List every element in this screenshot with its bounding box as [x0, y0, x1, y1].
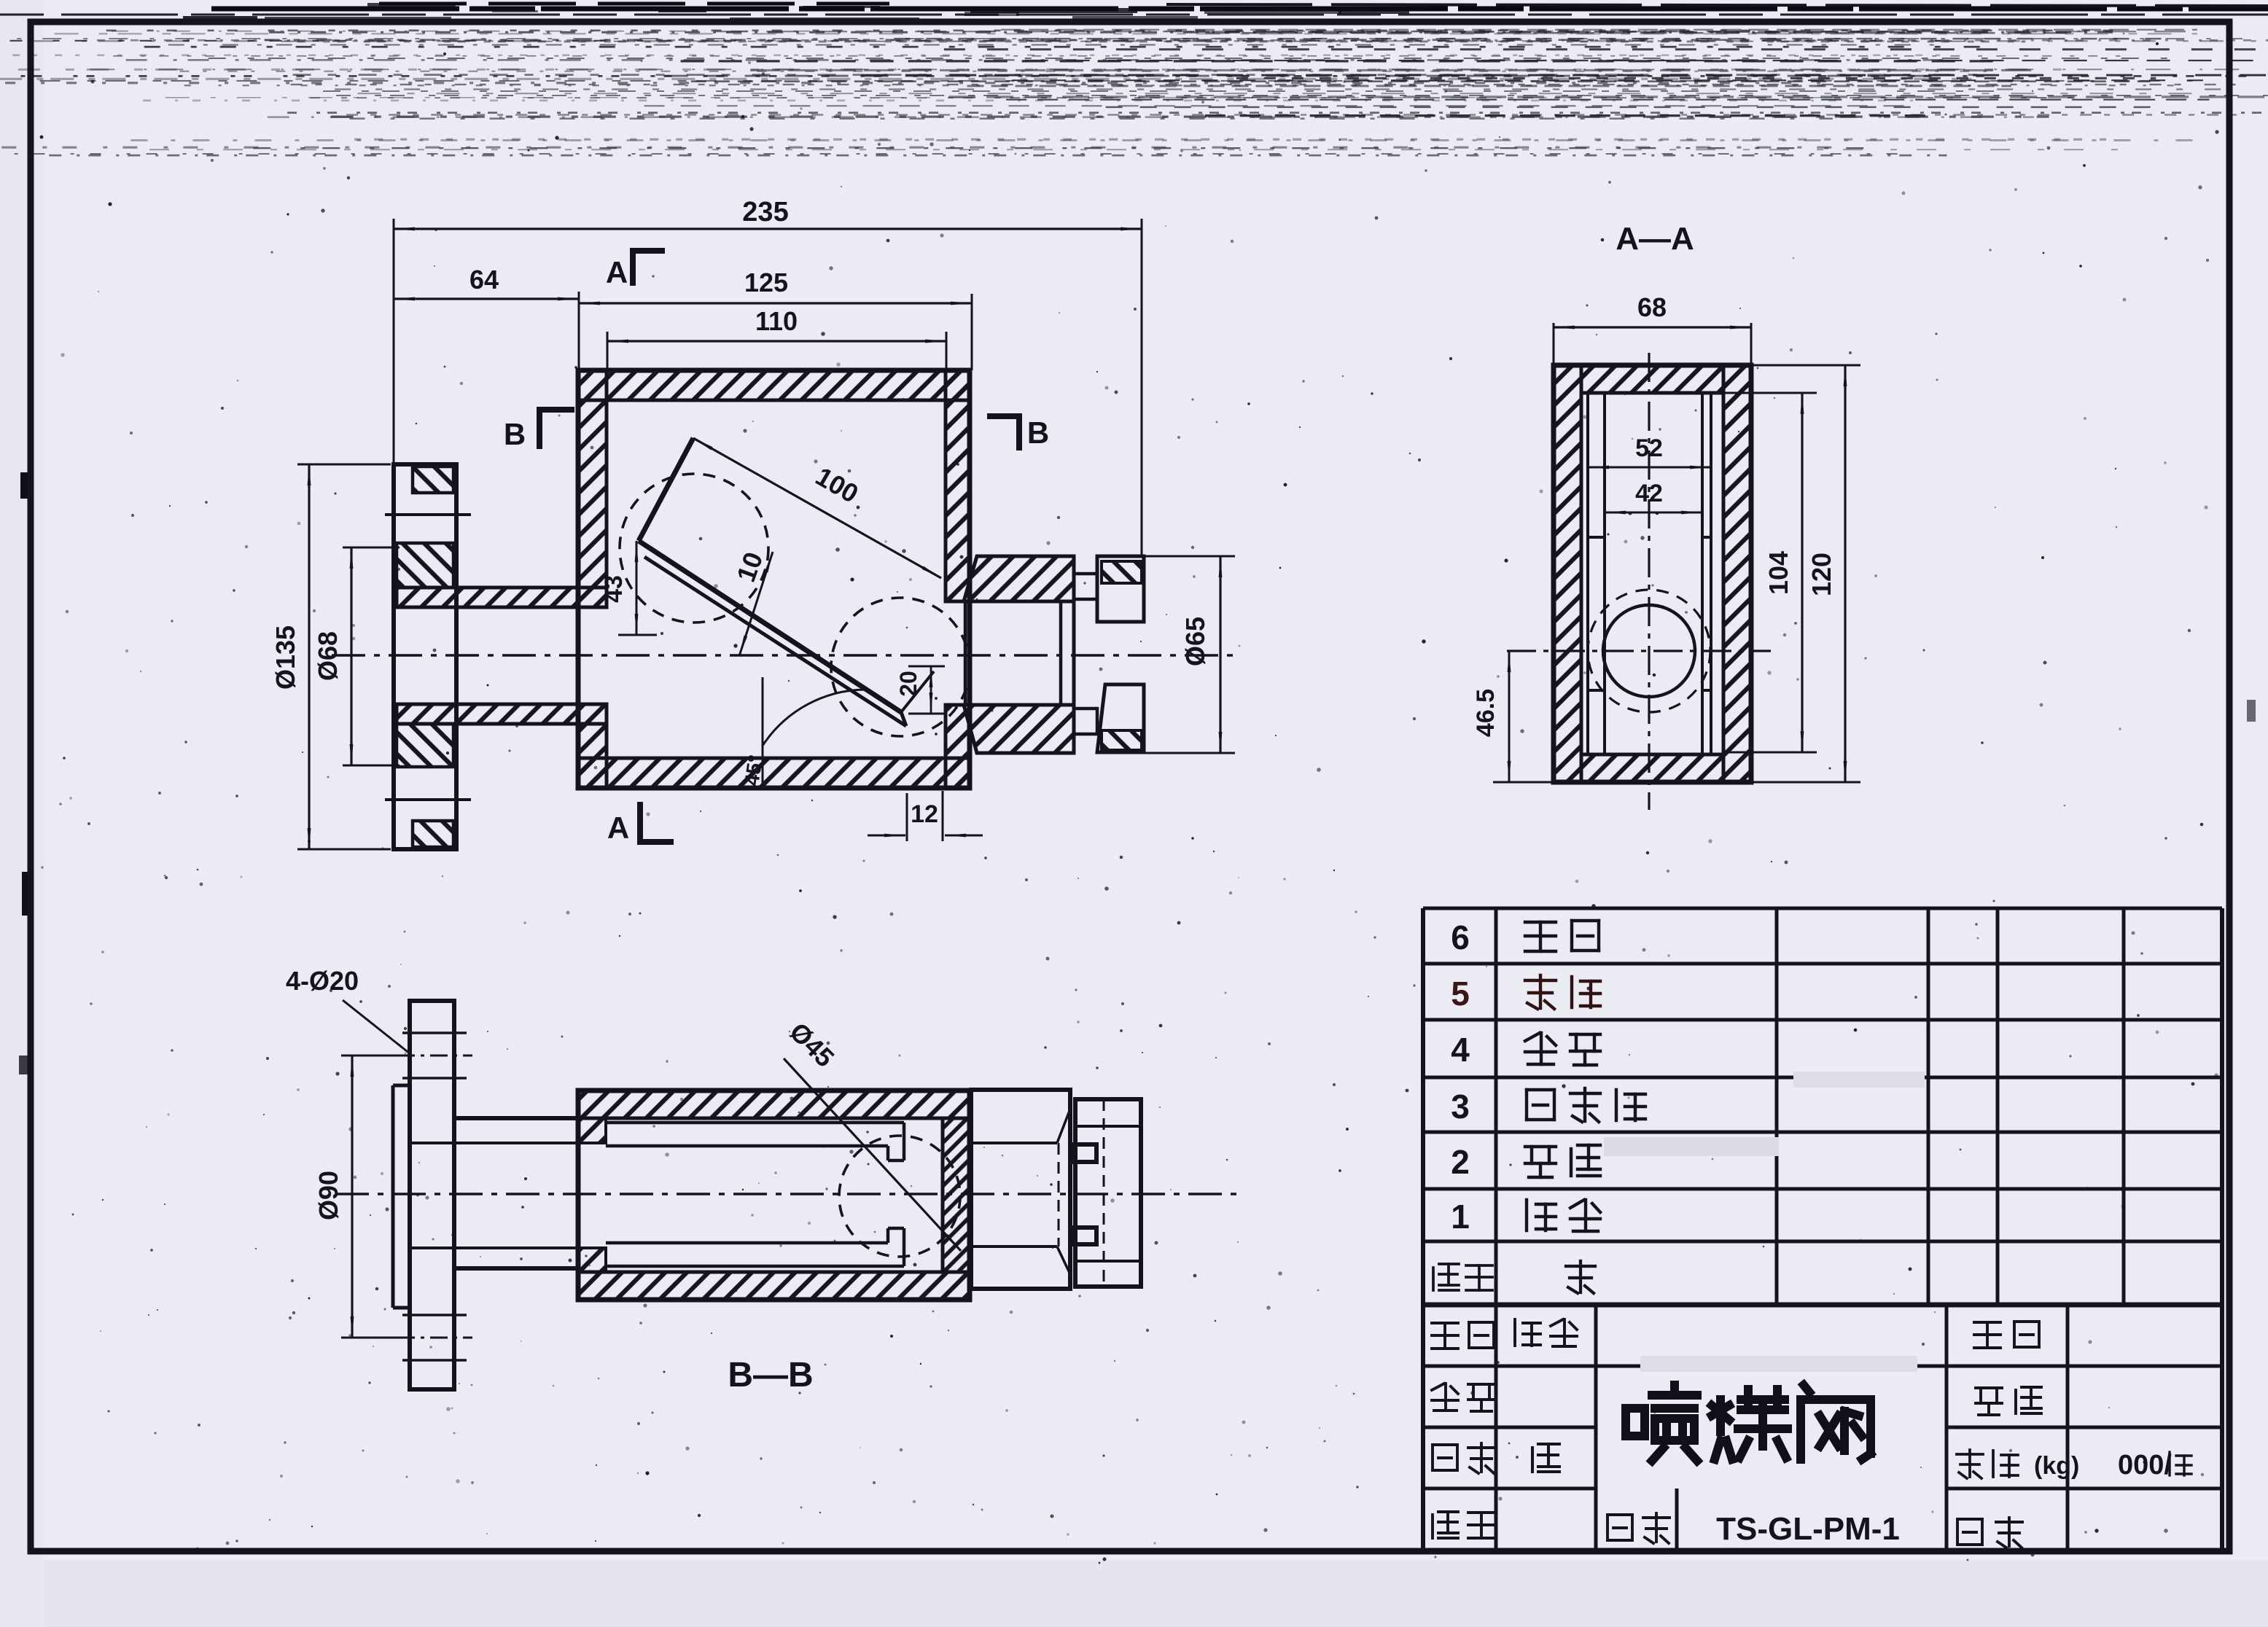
svg-text:43: 43	[600, 575, 628, 603]
svg-text:4: 4	[1451, 1031, 1470, 1069]
svg-text:000/: 000/	[2118, 1450, 2172, 1480]
svg-text:64: 64	[469, 265, 499, 294]
svg-text:B: B	[1027, 415, 1049, 450]
svg-text:110: 110	[755, 306, 798, 336]
svg-text:(kg): (kg)	[2034, 1452, 2079, 1480]
svg-text:6: 6	[1451, 918, 1470, 956]
svg-text:B: B	[504, 417, 526, 451]
svg-text:68: 68	[1637, 292, 1667, 322]
svg-text:3: 3	[1451, 1088, 1470, 1125]
svg-text:20: 20	[895, 671, 921, 697]
svg-text:5: 5	[1451, 975, 1470, 1013]
svg-text:Ø90: Ø90	[313, 1171, 343, 1220]
svg-text:A—A: A—A	[1616, 221, 1694, 257]
svg-text:B—B: B—B	[728, 1356, 813, 1394]
svg-text:TS-GL-PM-1: TS-GL-PM-1	[1716, 1511, 1900, 1547]
svg-text:52: 52	[1635, 434, 1663, 462]
svg-text:120: 120	[1807, 553, 1836, 596]
svg-text:104: 104	[1764, 551, 1793, 595]
svg-text:4-Ø20: 4-Ø20	[286, 966, 359, 996]
svg-text:45°: 45°	[740, 754, 767, 787]
svg-text:125: 125	[744, 268, 788, 297]
svg-text:A: A	[607, 811, 629, 845]
svg-text:235: 235	[742, 197, 788, 227]
svg-text:Ø135: Ø135	[270, 625, 300, 690]
svg-text:A: A	[606, 255, 628, 289]
svg-text:Ø65: Ø65	[1180, 617, 1210, 666]
svg-text:2: 2	[1451, 1143, 1470, 1181]
svg-text:42: 42	[1635, 480, 1663, 507]
svg-text:1: 1	[1451, 1198, 1470, 1236]
svg-text:46.5: 46.5	[1472, 689, 1500, 737]
svg-text:12: 12	[911, 800, 938, 828]
